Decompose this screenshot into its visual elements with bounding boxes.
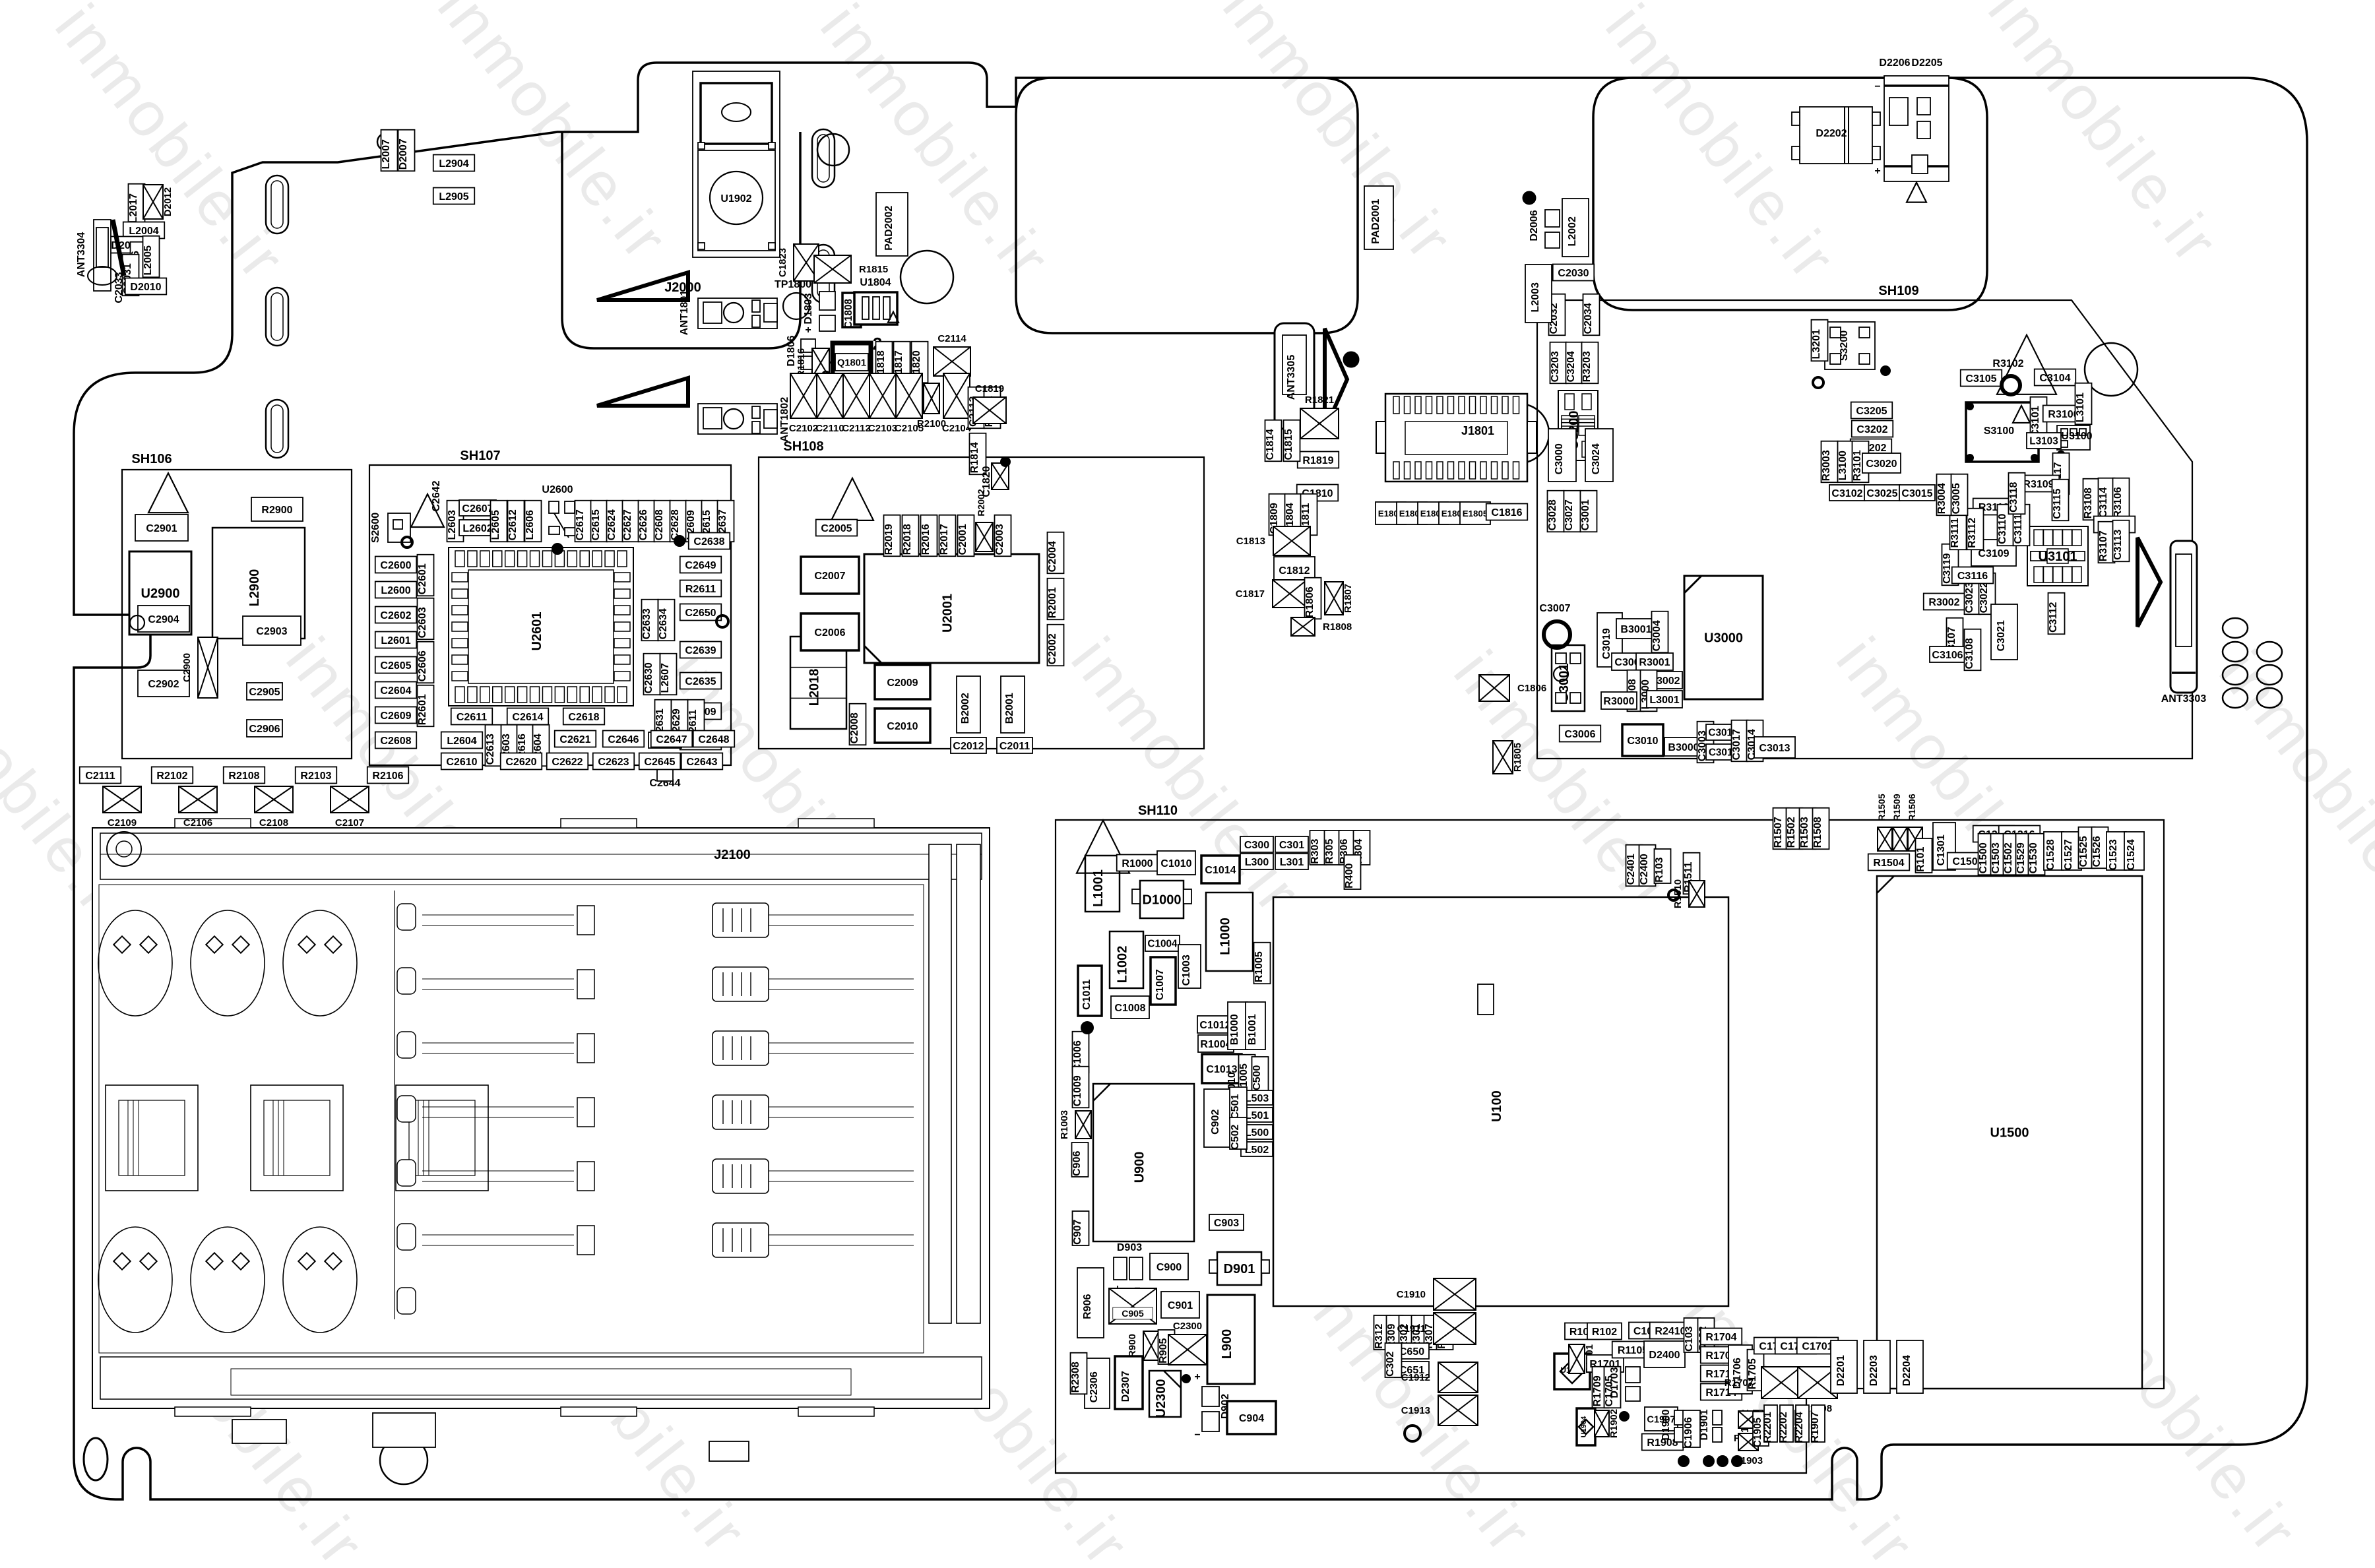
component-L2601: L2601: [375, 632, 417, 648]
component-D2204: D2204: [1897, 1340, 1923, 1393]
watermark-text: inmobile.ir: [807, 0, 1065, 294]
label: S2600: [370, 513, 381, 543]
label: C2008: [849, 712, 860, 743]
label: R3000: [1603, 696, 1634, 707]
label: C1814: [1265, 429, 1276, 460]
component-bx: [752, 406, 760, 418]
label: J1801: [1461, 424, 1494, 437]
component-C1523: C1523: [2106, 832, 2126, 870]
component-C2613: C2613: [485, 725, 502, 767]
component-C1526: C1526: [2091, 827, 2108, 869]
component-L2600: L2600: [375, 582, 417, 598]
label: PAD2001: [1370, 199, 1381, 244]
component-C2112: C2112: [842, 373, 870, 434]
label: C2107: [335, 817, 364, 829]
component-bx: [549, 526, 559, 534]
label: U1500: [1990, 1126, 2029, 1141]
label: U2601: [530, 612, 544, 651]
label: C906: [1071, 1151, 1083, 1176]
label: L1002: [1116, 946, 1130, 984]
label: B2001: [1004, 693, 1015, 724]
label: D1901: [1699, 1409, 1710, 1440]
label: C2630: [643, 662, 654, 693]
label: C2006: [814, 627, 845, 639]
component-C2648: C2648: [693, 731, 735, 747]
component-D2307: D2307: [1115, 1356, 1143, 1409]
label: C1819: [975, 383, 1004, 394]
label: C2108: [259, 817, 288, 829]
label: L2605: [490, 510, 501, 540]
component-R2002: R2002: [976, 489, 993, 551]
component-ANT1802: ANT1802: [779, 397, 790, 443]
component-C2103: C2103: [868, 373, 897, 434]
component-C302: C302: [1385, 1343, 1402, 1377]
label: L2002: [1567, 216, 1578, 246]
component-C3113: C3113: [2112, 520, 2130, 562]
component-dot: [1880, 365, 1891, 376]
label: C2033: [113, 272, 125, 303]
component-tri: [1907, 183, 1926, 203]
component-−: −: [1194, 1429, 1200, 1441]
label: C3110: [1997, 514, 2008, 544]
component-L2606: L2606: [524, 501, 542, 542]
component-C3013: C3013: [1754, 737, 1795, 758]
label: L3100: [1837, 451, 1849, 480]
component-L3103: L3103: [2027, 433, 2061, 449]
component-C2108: C2108: [255, 786, 293, 829]
component-bx: [862, 297, 869, 319]
label: C2902: [148, 679, 179, 690]
component-bx: [819, 292, 835, 310]
component-C2621: C2621: [555, 731, 596, 747]
component-C3020: C3020: [1862, 453, 1901, 473]
component-C2102: C2102: [789, 373, 818, 434]
label: C1813: [1236, 536, 1265, 547]
label: C501: [1230, 1094, 1241, 1119]
label: C1009: [1072, 1075, 1083, 1106]
component-C2905: C2905: [247, 683, 282, 700]
component-bx: [769, 142, 775, 149]
label: C2010: [887, 721, 918, 732]
component-bx: [1545, 210, 1560, 227]
component-+: +: [805, 325, 811, 336]
component-PAD2002: PAD2002: [876, 193, 908, 256]
component-U1904: U1904: [1580, 1416, 1588, 1437]
label: C1529: [2015, 842, 2027, 873]
component-bx: [565, 528, 575, 536]
component-R1508: R1508: [1812, 808, 1829, 850]
label: L2602: [462, 523, 492, 534]
label: C2605: [380, 660, 411, 672]
component-tri: [831, 478, 873, 520]
component-L3001: L3001: [1647, 691, 1682, 708]
label: C2649: [685, 560, 716, 571]
label: C2626: [638, 509, 649, 540]
component-R2611: R2611: [680, 580, 722, 597]
label: C2603: [417, 607, 428, 638]
label: S3200: [1839, 330, 1850, 361]
component-C3024: C3024: [1585, 429, 1613, 482]
component-D2007: D2007: [398, 130, 415, 172]
label: R102: [1592, 1327, 1617, 1338]
label: C1806: [1517, 683, 1546, 694]
label: L2018: [807, 669, 822, 706]
component-C2005: C2005: [816, 520, 858, 536]
label: C3203: [1550, 351, 1561, 382]
label: U1804: [860, 277, 891, 288]
component-R1704: R1704: [1701, 1329, 1742, 1345]
label: L301: [1280, 857, 1304, 868]
component-bx: [752, 300, 760, 312]
label: R2018: [902, 524, 913, 555]
component-D2202: D2202: [1816, 128, 1847, 139]
component-L2003: L2003: [1525, 265, 1552, 323]
component-C3015: C3015: [1899, 485, 1935, 501]
label: R1504: [1873, 858, 1904, 869]
label: C907: [1072, 1220, 1083, 1245]
component-S3100: S3100: [1984, 425, 2014, 437]
label: L3103: [2029, 436, 2058, 447]
component-J2000: J2000: [664, 280, 701, 295]
component-C3202: C3202: [1852, 421, 1893, 437]
component-C2106: C2106: [179, 786, 217, 829]
component-bx: [1674, 1427, 1684, 1442]
label: C1301: [1936, 834, 1947, 865]
label: D2400: [1649, 1350, 1680, 1361]
label: C2643: [686, 757, 717, 768]
label: C2900: [181, 653, 193, 682]
component-C1813: C1813: [1236, 526, 1310, 555]
component-R3108: R3108: [2083, 479, 2100, 520]
component-C1011: C1011: [1078, 966, 1102, 1016]
component-R3106: R3106: [2112, 478, 2130, 520]
label: C2114: [937, 333, 966, 344]
component-D2203: D2203: [1864, 1340, 1890, 1393]
label: C1503: [1990, 842, 2002, 873]
label: C3020: [1866, 458, 1897, 470]
label: J2000: [664, 280, 701, 295]
component-bxB: [701, 83, 772, 144]
component-C2110: C2110: [815, 373, 844, 434]
component-bx: [2176, 554, 2192, 646]
component-bx: [1209, 1260, 1217, 1273]
label: C3028: [1547, 499, 1558, 530]
component-L3101: L3101: [2075, 383, 2092, 425]
component-C3205: C3205: [1851, 402, 1893, 419]
component-bx: [1912, 155, 1928, 173]
component-C2109: C2109: [103, 786, 141, 829]
label: C3202: [1856, 424, 1887, 435]
component-bx: [1114, 1257, 1127, 1280]
component-R400: R400: [1344, 855, 1361, 889]
component-C2008: C2008: [849, 704, 866, 745]
label: C1816: [1491, 507, 1522, 518]
label: D2205: [1911, 57, 1942, 69]
ic-D1000: D1000: [1140, 881, 1184, 918]
label: R2204: [1794, 1412, 1805, 1443]
label: D2204: [1901, 1355, 1913, 1386]
component-R1003: R1003: [1059, 1110, 1091, 1139]
label: PAD2002: [883, 206, 895, 251]
component-bx: [698, 243, 705, 249]
label: E1805: [1463, 509, 1488, 518]
label: R1509: [1891, 794, 1902, 821]
ic-L1002: L1002: [1110, 931, 1143, 988]
via-dot: [1343, 352, 1359, 367]
label: R1902: [1608, 1409, 1620, 1438]
label: C3001: [1580, 499, 1591, 530]
component-C906: C906: [1071, 1143, 1089, 1177]
component-C2602: C2602: [375, 607, 417, 623]
component-bx: [1202, 1412, 1219, 1431]
component-R2019: R2019: [883, 515, 901, 557]
label: C1525: [2078, 836, 2089, 867]
component-L2607: L2607: [660, 654, 677, 695]
label: C1004: [1147, 939, 1178, 950]
component-C3108: C3108: [1964, 629, 1981, 671]
component-bx: [883, 297, 890, 319]
label: C3105: [1965, 373, 1996, 385]
component-C2904: C2904: [138, 606, 189, 632]
component-D2012: D2012: [143, 185, 174, 219]
label: C103: [1684, 1327, 1695, 1352]
label: Q1801: [837, 358, 866, 368]
label: L2003: [1530, 282, 1541, 312]
label: C2901: [146, 523, 177, 534]
component-D2201: D2201: [1831, 1340, 1857, 1393]
component-bx: [1184, 889, 1191, 904]
label: C902: [1210, 1110, 1221, 1135]
label: C2003: [994, 524, 1005, 555]
label: R2410: [1655, 1326, 1686, 1337]
label: C1913: [1401, 1405, 1430, 1416]
label: SH109: [1878, 284, 1918, 298]
component-C2612: C2612: [507, 501, 524, 542]
component-C2107: C2107: [331, 786, 369, 829]
component-C3004: C3004: [1651, 612, 1668, 653]
label: C2103: [868, 423, 897, 434]
component-C1815: C1815: [1283, 420, 1300, 462]
component-L300: L300: [1240, 854, 1273, 869]
label: U2600: [542, 484, 573, 495]
component-C502: C502: [1230, 1117, 1247, 1150]
label: ANT3304: [76, 232, 87, 278]
component-bx: [764, 303, 777, 322]
component-C2646: C2646: [603, 731, 645, 747]
component-D2006: D2006: [1529, 210, 1540, 241]
component-bx: [1556, 653, 1566, 664]
label: D2206: [1879, 57, 1910, 69]
label: C2034: [1583, 303, 1594, 334]
component-C3118: C3118: [2008, 473, 2025, 515]
component-R1907: R1907: [1810, 1405, 1825, 1443]
label: C2646: [608, 734, 639, 745]
component-R3002: R3002: [1924, 594, 1965, 610]
label: C2005: [821, 523, 852, 534]
component-C3102: C3102: [1829, 485, 1865, 501]
label: R1000: [1122, 858, 1153, 869]
label: C2002: [1047, 633, 1058, 664]
label: ANT3305: [1286, 355, 1297, 400]
label: R1506: [1907, 794, 1917, 821]
label: R1709: [1592, 1375, 1603, 1406]
label: C3019: [1601, 628, 1612, 659]
label: C3111: [2013, 514, 2024, 544]
component-C1009: C1009: [1072, 1067, 1089, 1108]
component-bx: [1713, 1410, 1722, 1425]
component-bx: [752, 422, 760, 433]
label: C300: [1244, 840, 1269, 851]
component-C1817: C1817: [1236, 580, 1307, 608]
label: R305: [1324, 839, 1335, 864]
label: R3101: [1852, 450, 1863, 481]
label: B1000: [1229, 1014, 1240, 1045]
label: R1821: [1305, 394, 1334, 406]
component-R3102: R3102: [1992, 358, 2023, 369]
component-bx: [1556, 693, 1566, 703]
label: C2620: [505, 757, 536, 768]
component-bx: [1132, 889, 1140, 904]
label: R2016: [920, 524, 932, 555]
label: C2306: [1089, 1371, 1100, 1402]
ic-L900: L900: [1207, 1295, 1255, 1384]
component-B2002: B2002: [957, 676, 980, 733]
label: R2900: [261, 505, 292, 516]
component-C2111: C2111: [80, 767, 121, 784]
component-C3028: C3028: [1547, 491, 1564, 532]
component-bx: [373, 1413, 435, 1447]
component-C903: C903: [1209, 1214, 1244, 1230]
component-J2100: J2100: [714, 848, 751, 862]
component-C2300: C2300: [1168, 1321, 1207, 1365]
component-bx: [709, 1441, 749, 1461]
label: B1001: [1247, 1014, 1258, 1045]
ic-U900: U900: [1093, 1084, 1194, 1241]
component-C2622: C2622: [547, 753, 588, 770]
component-C2647: C2647: [651, 731, 693, 747]
component-C500: C500: [1251, 1057, 1269, 1091]
label: R3106: [2112, 487, 2124, 518]
component-C902: C902: [1204, 1089, 1233, 1147]
component-C3104: C3104: [2035, 369, 2076, 386]
component-PAD2001: PAD2001: [1364, 186, 1393, 249]
component-S2600: S2600: [370, 513, 381, 543]
component-bx: [1261, 1260, 1269, 1273]
component-bx: [764, 410, 777, 428]
component-D1803: D1803: [803, 293, 814, 324]
component-C3005: C3005: [1951, 474, 1968, 516]
label: C2624: [606, 509, 617, 540]
label: R906: [1082, 1294, 1093, 1319]
label: R3203: [1581, 351, 1593, 382]
component-C2630: C2630: [643, 654, 660, 695]
ic-U100: U100: [1273, 897, 1728, 1306]
component-C3021: C3021: [1991, 604, 2017, 660]
label: R3108: [2083, 487, 2094, 518]
label: C1910: [1397, 1289, 1426, 1300]
component-C900: C900: [1150, 1253, 1188, 1280]
component-C2007: C2007: [801, 557, 859, 594]
label: C2102: [789, 423, 818, 434]
label: C2401: [1626, 854, 1637, 885]
component-dot: [1619, 1411, 1630, 1422]
component-dot: [1703, 1455, 1715, 1467]
label: L501: [1245, 1110, 1269, 1121]
label: L2601: [381, 635, 410, 646]
label: L500: [1245, 1127, 1269, 1139]
label: R1505: [1876, 794, 1887, 821]
ic-U1500: U1500: [1877, 876, 2142, 1389]
component-C2635: C2635: [680, 673, 722, 689]
label: C1003: [1181, 955, 1192, 986]
component-R2204: R2204: [1794, 1405, 1809, 1443]
label: C2647: [656, 734, 687, 745]
component-xb: [992, 463, 1009, 489]
label: L2004: [129, 226, 158, 237]
label: C901: [1168, 1300, 1193, 1311]
label: R101: [1915, 847, 1926, 872]
component-dot: [674, 535, 685, 547]
label: C2622: [552, 757, 583, 768]
component-C2614: C2614: [507, 708, 549, 725]
component-bx: [1202, 1387, 1219, 1406]
component-ANT3303: ANT3303: [2161, 693, 2207, 705]
label: C3022: [1979, 582, 1990, 613]
component-C2608: C2608: [375, 732, 417, 749]
label: C3005: [1951, 483, 1962, 514]
component-C3010: C3010: [1622, 724, 1663, 756]
label: C1014: [1205, 865, 1236, 876]
label: C2650: [685, 608, 716, 619]
component-C3001: C3001: [1580, 491, 1597, 532]
component-R1902: R1902: [1595, 1409, 1620, 1438]
component-C3115: C3115: [2052, 480, 2069, 521]
component-bx: [703, 302, 722, 323]
component-C2650: C2650: [680, 604, 722, 621]
label: R2102: [156, 770, 187, 782]
component-R3003: R3003: [1821, 441, 1838, 483]
component-R1805: R1805: [1493, 741, 1523, 774]
oval-hole: [84, 1438, 108, 1480]
label: C900: [1156, 1262, 1182, 1273]
component-C1524: C1524: [2124, 832, 2144, 870]
pcb-silkscreen-diagram: inmobile.irinmobile.irinmobile.irinmobil…: [0, 0, 2375, 1568]
component-U1902: U1902: [720, 193, 751, 204]
component-L301: L301: [1275, 854, 1308, 869]
label: R3102: [1992, 358, 2023, 369]
component-+: +: [1194, 1371, 1200, 1383]
component-B3001: B3001: [1616, 619, 1656, 639]
component-R3000: R3000: [1601, 692, 1637, 709]
label: R2106: [372, 770, 403, 782]
label: C3000: [1554, 443, 1565, 474]
watermark-text: inmobile.ir: [1209, 0, 1467, 274]
component-bx: [1545, 232, 1560, 248]
label: C2109: [108, 817, 137, 829]
label: C502: [1230, 1125, 1241, 1150]
ic-L1000: L1000: [1206, 893, 1253, 971]
component-C2623: C2623: [593, 753, 635, 770]
label: R3002: [1928, 597, 1959, 608]
component-SH109: SH109: [1878, 284, 1918, 298]
label: C1817: [1236, 588, 1265, 600]
component-dot: [1966, 402, 1974, 410]
component-wedge: [597, 378, 688, 406]
component-C3006: C3006: [1560, 726, 1601, 742]
label: U900: [1133, 1152, 1147, 1183]
label: U2001: [941, 594, 955, 633]
component-C301: C301: [1275, 836, 1308, 852]
